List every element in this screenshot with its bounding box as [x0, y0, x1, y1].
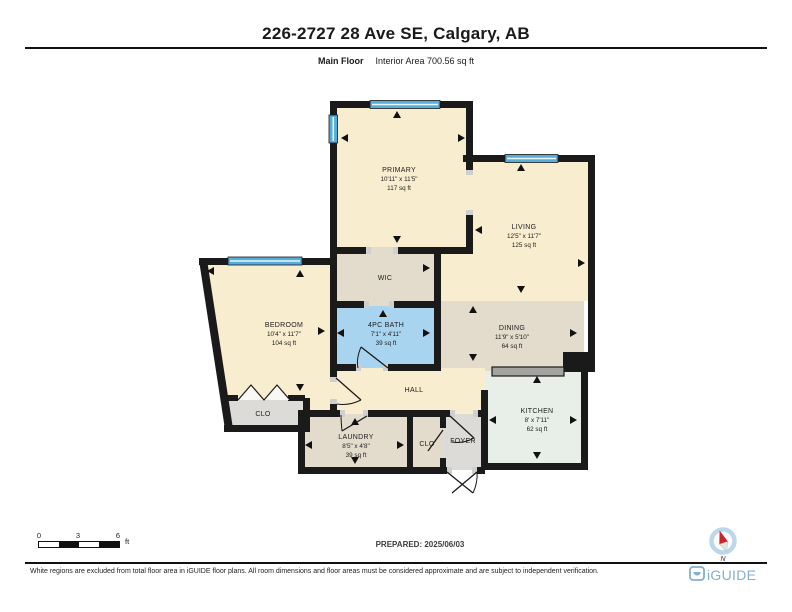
room-hall-name: HALL — [405, 387, 424, 394]
iguide-logo: iGUIDE — [690, 567, 756, 583]
room-primary-name: PRIMARY — [382, 167, 416, 174]
room-bath-name: 4PC BATH — [368, 322, 404, 329]
room-laundry-dims: 8'5" x 4'8" — [342, 443, 370, 450]
compass-icon: N — [712, 529, 735, 563]
room-bedroom-dims: 10'4" x 11'7" — [267, 331, 301, 338]
iguide-brand-text: iGUIDE — [707, 567, 756, 583]
prepared-date: PREPARED: 2025/06/03 — [300, 540, 540, 549]
room-primary-dims: 10'11" x 11'5" — [380, 176, 417, 183]
room-foyer-name: FOYER — [450, 438, 476, 445]
room-kitchen-dims: 8' x 7'11" — [525, 417, 550, 424]
room-bath-dims: 7'1" x 4'11" — [371, 331, 402, 338]
scale-tick-0: 0 — [34, 531, 44, 540]
footer-disclaimer: White regions are excluded from total fl… — [30, 568, 670, 575]
room-laundry-sqft: 39 sq ft — [346, 452, 367, 459]
room-living-dims: 12'5" x 11'7" — [507, 233, 541, 240]
room-primary-sqft: 117 sq ft — [387, 185, 411, 192]
room-dining-dims: 11'9" x 5'10" — [495, 334, 529, 341]
room-closet-hall-name: CLO — [419, 441, 435, 448]
footer-divider — [25, 562, 767, 564]
floor-plan: PRIMARY 10'11" x 11'5" 117 sq ft LIVING … — [0, 0, 792, 612]
room-kitchen-name: KITCHEN — [521, 408, 554, 415]
room-bedroom-sqft: 104 sq ft — [272, 340, 296, 347]
room-dining-name: DINING — [499, 325, 525, 332]
room-kitchen-sqft: 62 sq ft — [527, 426, 548, 433]
room-dining-sqft: 64 sq ft — [502, 343, 523, 350]
room-bedroom-name: BEDROOM — [265, 322, 303, 329]
scale-tick-3: 3 — [73, 531, 83, 540]
room-closet-bedroom-name: CLO — [255, 411, 271, 418]
room-laundry-name: LAUNDRY — [338, 434, 373, 441]
scale-tick-6: 6 — [113, 531, 123, 540]
room-living-name: LIVING — [512, 224, 537, 231]
scale-bar: 0 3 6 ft — [38, 531, 148, 551]
kitchen-counter — [492, 367, 564, 376]
scale-bar-segments — [38, 541, 120, 548]
room-bath-sqft: 39 sq ft — [376, 340, 397, 347]
room-wic-name: WIC — [378, 275, 393, 282]
room-living-sqft: 125 sq ft — [512, 242, 536, 249]
scale-unit-label: ft — [125, 537, 129, 546]
